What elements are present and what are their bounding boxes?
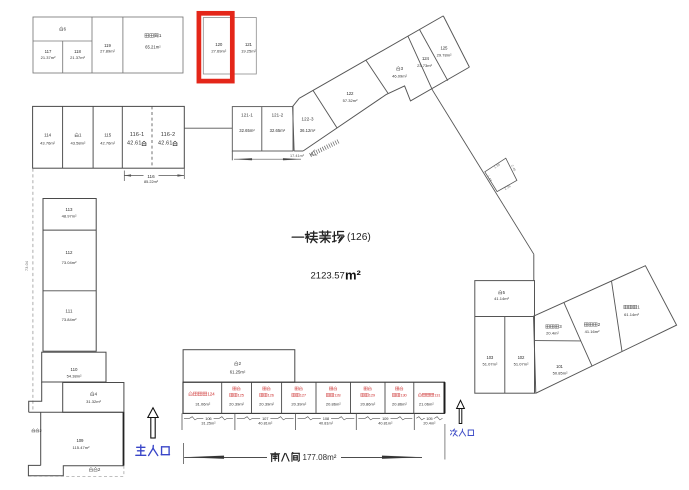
svg-text:36.12m²: 36.12m² — [300, 128, 316, 133]
svg-text:2: 2 — [40, 428, 42, 433]
svg-text:116-2: 116-2 — [161, 132, 175, 138]
svg-text:32.65m²: 32.65m² — [239, 128, 255, 133]
svg-text:130: 130 — [400, 393, 407, 398]
svg-text:51.07m²: 51.07m² — [482, 361, 497, 366]
svg-text:21.37m²: 21.37m² — [41, 55, 56, 60]
svg-text:109: 109 — [382, 416, 389, 421]
svg-text:51.07m²: 51.07m² — [514, 361, 529, 366]
svg-text:106: 106 — [205, 416, 212, 421]
svg-text:40.81m²: 40.81m² — [319, 422, 334, 426]
svg-text:120: 120 — [215, 42, 223, 47]
svg-text:29.78m²: 29.78m² — [437, 53, 452, 58]
svg-text:126: 126 — [268, 393, 275, 398]
svg-text:73.04: 73.04 — [25, 261, 29, 271]
svg-text:124: 124 — [207, 391, 215, 396]
svg-text:20.4m²: 20.4m² — [423, 422, 436, 426]
svg-text:127: 127 — [300, 393, 307, 398]
svg-text:20.86m²: 20.86m² — [392, 401, 407, 406]
svg-text:21.37m²: 21.37m² — [70, 55, 85, 60]
svg-text:115.47m²: 115.47m² — [73, 445, 91, 450]
svg-text:115: 115 — [104, 133, 112, 138]
svg-text:48.97m²: 48.97m² — [62, 213, 77, 218]
svg-text:121-2: 121-2 — [272, 112, 284, 117]
svg-text:73.04m²: 73.04m² — [62, 260, 77, 265]
svg-text:32.65m²: 32.65m² — [270, 128, 286, 133]
svg-text:129: 129 — [369, 393, 376, 398]
svg-text:43.76m²: 43.76m² — [40, 140, 55, 145]
svg-text:40.81m²: 40.81m² — [378, 422, 393, 426]
svg-text:124: 124 — [422, 56, 430, 61]
svg-text:113: 113 — [66, 207, 74, 212]
svg-text:122-3: 122-3 — [302, 117, 314, 122]
svg-text:65.21m²: 65.21m² — [145, 45, 161, 50]
svg-text:42.76m²: 42.76m² — [100, 140, 115, 145]
svg-text:73.84m²: 73.84m² — [62, 317, 77, 322]
svg-text:m²: m² — [345, 268, 362, 283]
svg-text:20.39m²: 20.39m² — [229, 401, 244, 406]
svg-text:57.32m²: 57.32m² — [343, 98, 358, 103]
svg-text:102: 102 — [518, 355, 525, 360]
svg-text:20.39m²: 20.39m² — [291, 401, 306, 406]
svg-text:131: 131 — [434, 392, 440, 397]
svg-text:61.14m²: 61.14m² — [624, 312, 639, 317]
svg-text:27.69m²: 27.69m² — [211, 48, 226, 53]
svg-text:121-1: 121-1 — [241, 112, 253, 117]
svg-text:20.39m²: 20.39m² — [259, 401, 274, 406]
svg-text:128: 128 — [334, 393, 341, 398]
svg-text:27.89m²: 27.89m² — [100, 49, 115, 54]
svg-text:50.85m²: 50.85m² — [553, 371, 568, 376]
svg-text:85.22m²: 85.22m² — [144, 180, 159, 184]
svg-text:116: 116 — [147, 174, 155, 179]
svg-text:105: 105 — [426, 416, 433, 421]
svg-text:23.73m²: 23.73m² — [417, 63, 432, 68]
svg-text:119: 119 — [104, 43, 111, 48]
svg-text:2123.57: 2123.57 — [311, 271, 345, 282]
svg-text:118: 118 — [74, 49, 81, 54]
svg-text:54.38m²: 54.38m² — [67, 373, 82, 378]
svg-text:20.86m²: 20.86m² — [326, 401, 341, 406]
svg-text:103: 103 — [486, 355, 493, 360]
svg-text:122: 122 — [347, 91, 355, 96]
svg-text:108: 108 — [323, 416, 330, 421]
svg-text:1: 1 — [159, 33, 162, 38]
svg-text:116-1: 116-1 — [130, 132, 144, 138]
svg-text:43.58m²: 43.58m² — [70, 140, 85, 145]
svg-text:61.25m²: 61.25m² — [230, 370, 246, 375]
svg-text:41.16m²: 41.16m² — [585, 329, 600, 334]
svg-text:21.06m²: 21.06m² — [419, 401, 434, 406]
svg-text:31.25m²: 31.25m² — [201, 422, 216, 426]
svg-text:114: 114 — [44, 133, 52, 138]
svg-text:107: 107 — [262, 416, 269, 421]
svg-text:101: 101 — [556, 364, 563, 369]
svg-text:17.41m²: 17.41m² — [290, 154, 305, 158]
svg-text:42.61: 42.61 — [127, 141, 141, 147]
svg-text:(126): (126) — [347, 232, 371, 243]
svg-text:40.81m²: 40.81m² — [258, 422, 273, 426]
svg-text:20.4m²: 20.4m² — [546, 331, 559, 336]
svg-text:42.61: 42.61 — [158, 141, 172, 147]
svg-text:177.08m²: 177.08m² — [303, 453, 337, 462]
svg-text:41.14m²: 41.14m² — [494, 296, 509, 301]
svg-text:125: 125 — [238, 393, 245, 398]
svg-text:125: 125 — [441, 46, 449, 51]
svg-text:117: 117 — [45, 49, 52, 54]
svg-text:121: 121 — [245, 42, 253, 47]
svg-text:31.06m²: 31.06m² — [195, 401, 210, 406]
svg-text:19.25m²: 19.25m² — [241, 48, 256, 53]
svg-text:31.32m²: 31.32m² — [86, 399, 101, 404]
svg-text:109: 109 — [77, 438, 85, 443]
svg-text:110: 110 — [71, 367, 79, 372]
svg-text:46.09m²: 46.09m² — [392, 74, 407, 79]
svg-text:20.86m²: 20.86m² — [360, 401, 375, 406]
svg-text:111: 111 — [66, 309, 74, 314]
svg-text:112: 112 — [66, 250, 74, 255]
